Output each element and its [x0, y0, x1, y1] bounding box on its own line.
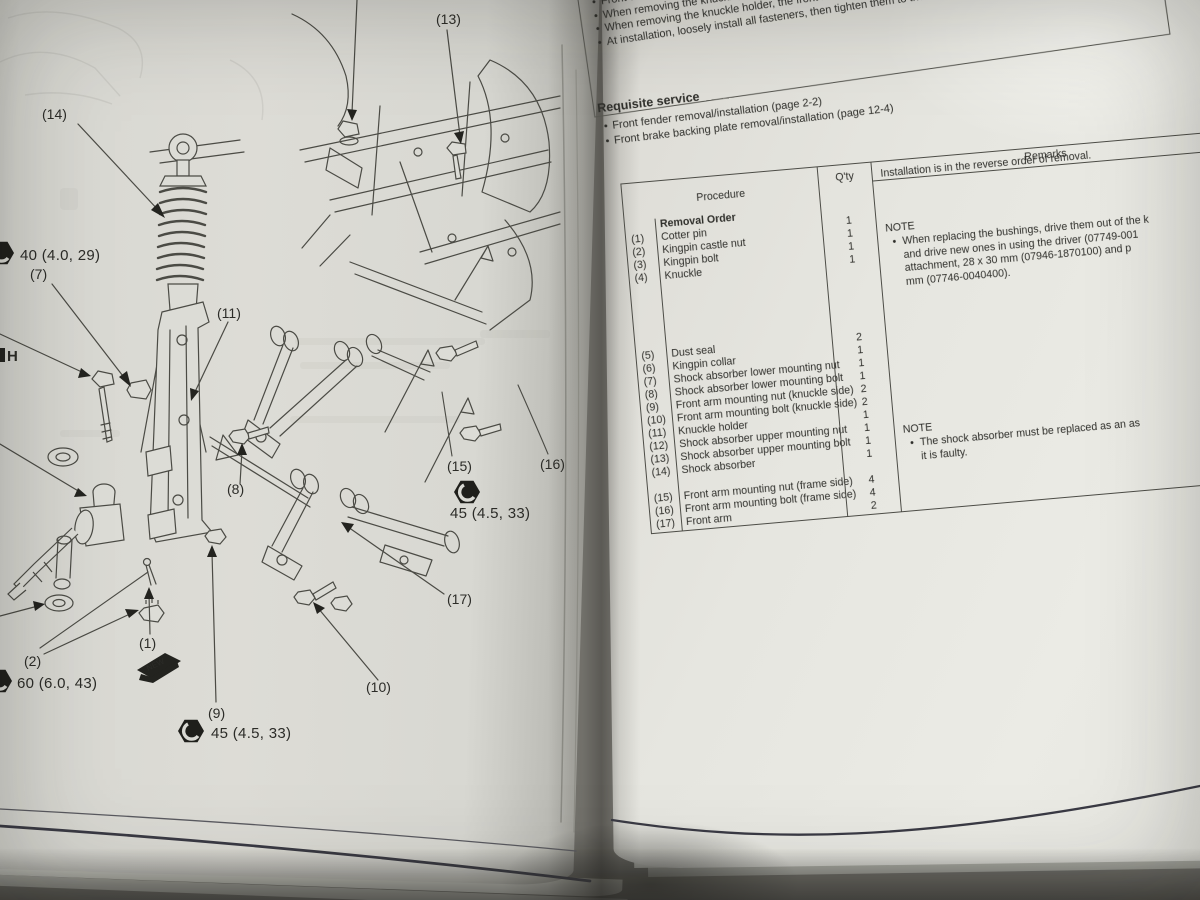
svg-text:H: H: [7, 348, 18, 365]
callout-16: (16): [540, 456, 565, 472]
book-photo: NEW H (14) (7) (11) (13) (8) (15) (16) (…: [0, 0, 1200, 900]
cotter-pin-part: [144, 559, 157, 586]
knuckle-parts: [8, 448, 164, 622]
procedure-column: Removal Order (1)Cotter pin (2)Kingpin c…: [621, 167, 847, 533]
nut-9-part: [205, 529, 226, 544]
callout-15: (15): [447, 458, 472, 474]
remarks-note-2: NOTE •The shock absorber must be replace…: [902, 394, 1200, 465]
callout-17: (17): [447, 591, 472, 607]
nut-12-part: [338, 121, 359, 137]
castle-nut-part: [139, 599, 164, 622]
procedure-table: Procedure Q'ty Remarks Removal Order (1)…: [620, 131, 1200, 534]
remarks-column: Installation is in the reverse order of …: [870, 132, 1200, 511]
frame-sketch: [150, 14, 560, 330]
callout-14: (14): [42, 106, 67, 122]
torque-front-arm-frame: 45 (4.5, 33): [450, 505, 530, 522]
torque-nut-icon-9: [178, 720, 204, 743]
callout-2: (2): [24, 653, 41, 669]
callout-7: (7): [30, 266, 47, 282]
new-tag-icon: NEW: [137, 653, 181, 683]
nut-7-part: [127, 380, 151, 399]
callout-9: (9): [208, 705, 225, 721]
shock-spring: [157, 188, 206, 280]
bottom-shadow: [0, 848, 1200, 900]
callout-10: (10): [366, 679, 391, 695]
torque-kingpin: 60 (6.0, 43): [17, 675, 97, 692]
right-page-content: NOTE •The shock absorber (1 •Shock absor…: [582, 0, 1200, 900]
torque-nut-icon-kingpin: [0, 670, 12, 693]
callout-8: (8): [227, 481, 244, 497]
callout-13: (13): [436, 11, 461, 27]
callout-1: (1): [139, 635, 156, 651]
torque-shock-upper: 40 (4.0, 29): [20, 247, 100, 264]
lower-nut-part: [331, 596, 352, 611]
bolt-10-part: [294, 582, 336, 605]
callout-11: (11): [217, 305, 241, 321]
exploded-diagram: NEW H (14) (7) (11) (13) (8) (15) (16) (…: [0, 0, 600, 900]
remarks-note-1: NOTE •When replacing the bushings, drive…: [885, 193, 1200, 290]
torque-nut-icon-15: [454, 481, 480, 504]
torque-front-arm-knuckle: 45 (4.5, 33): [211, 725, 291, 742]
front-arm-parts: [242, 246, 493, 580]
torque-nut-icon-shock: [0, 242, 14, 265]
installation-remark: Installation is in the reverse order of …: [880, 138, 1200, 181]
frame-side-bolts: [436, 341, 501, 441]
edge-glyph: H: [0, 348, 18, 365]
